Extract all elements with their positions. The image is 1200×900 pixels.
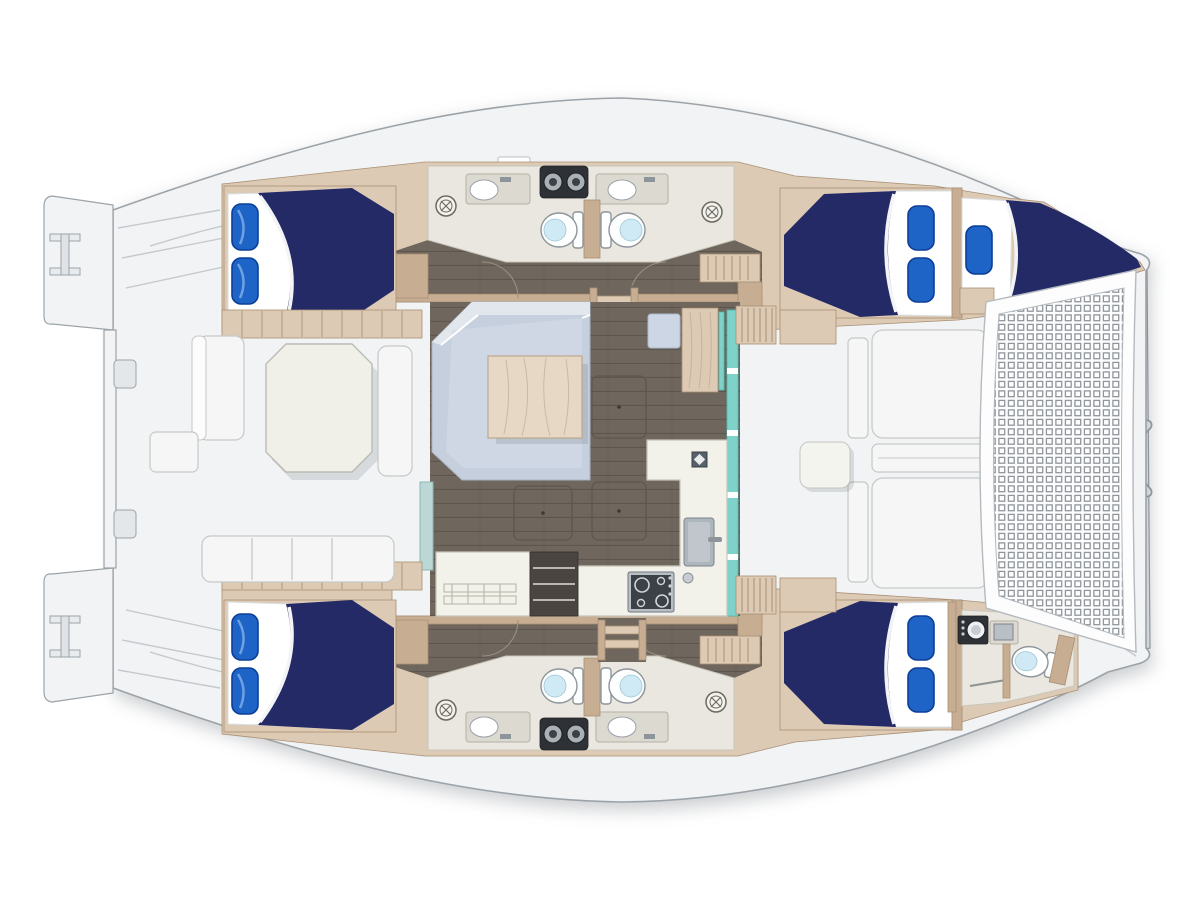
pillow (966, 226, 992, 274)
floorplan-canvas (0, 0, 1200, 900)
bow-trampoline (980, 270, 1136, 652)
head-divider-wall (584, 658, 600, 716)
sink-basin (608, 180, 636, 200)
companionway-steps (598, 618, 646, 662)
nav-seat (648, 314, 680, 348)
strainer (683, 573, 693, 583)
counter-drain (692, 452, 707, 467)
wardrobe (394, 254, 428, 298)
toilet-icon (601, 212, 645, 248)
bulkhead (948, 602, 956, 712)
sink-basin (470, 180, 498, 200)
catamaran-floorplan (0, 0, 1200, 900)
davit-bracket (114, 360, 136, 388)
toilet-icon (541, 212, 583, 248)
fridge-cabinet (436, 552, 530, 616)
starboard-aft-cabin (224, 600, 396, 732)
helm-bench (202, 536, 394, 582)
corner-seat (150, 432, 198, 472)
lounge-pad (872, 478, 988, 588)
toilet-icon (541, 668, 583, 704)
head-sink (990, 621, 1018, 644)
shower-drain-icon (436, 700, 456, 720)
aft-sliding-door (420, 482, 433, 570)
seat-back-panel (848, 482, 868, 582)
port-aft-cabin (224, 186, 396, 318)
corridor-trim (392, 616, 762, 624)
deck-locker (780, 578, 836, 612)
seat-back-panel (848, 338, 868, 438)
washing-machine-icon (958, 616, 988, 644)
starboard-transom-platform (44, 568, 113, 702)
sink-basin (608, 717, 636, 737)
partition (1003, 644, 1010, 698)
toilet-icon (601, 668, 645, 704)
faucet (708, 537, 722, 542)
pillow (232, 668, 258, 714)
deck-winch-panel (540, 166, 588, 198)
pillow (908, 258, 934, 302)
shower-drain-icon (702, 202, 722, 222)
forward-window-glass (727, 310, 738, 616)
foredeck-table (800, 442, 854, 492)
stove-icon (628, 572, 674, 612)
faucet (500, 177, 511, 182)
head-divider-wall (584, 200, 600, 258)
port-forward-cabin (780, 188, 962, 318)
open-shelf-unit (530, 552, 578, 616)
saloon (420, 302, 740, 616)
lounge-pad (872, 330, 988, 438)
corridor-trim (392, 294, 762, 302)
cockpit-bench-top (222, 310, 422, 338)
wardrobe (394, 620, 428, 664)
faucet (644, 734, 655, 739)
shower-drain-icon (706, 692, 726, 712)
shower-drain-icon (436, 196, 456, 216)
saloon-table (488, 356, 588, 444)
faucet (644, 177, 655, 182)
nav-cabinet (682, 308, 724, 392)
deck-winch-panel (540, 718, 588, 750)
pillow (908, 616, 934, 660)
deck-locker (780, 310, 836, 344)
louvered-hatch (736, 576, 776, 614)
davit-bracket (114, 510, 136, 538)
port-transom-platform (44, 196, 113, 330)
pillow (232, 204, 258, 250)
louvered-locker (700, 254, 760, 282)
louvered-locker (700, 636, 760, 664)
faucet (500, 734, 511, 739)
trampoline-net (994, 288, 1125, 638)
pillow (232, 614, 258, 660)
cockpit-bench-seat (378, 346, 412, 476)
sink-basin (470, 717, 498, 737)
pillow (908, 668, 934, 712)
bow-lounge (872, 330, 988, 588)
pillow (908, 206, 934, 250)
cockpit-table (266, 344, 378, 480)
armrest (192, 336, 206, 440)
louvered-hatch (736, 306, 776, 344)
starboard-forward-cabin (780, 600, 962, 730)
pillow (232, 258, 258, 304)
